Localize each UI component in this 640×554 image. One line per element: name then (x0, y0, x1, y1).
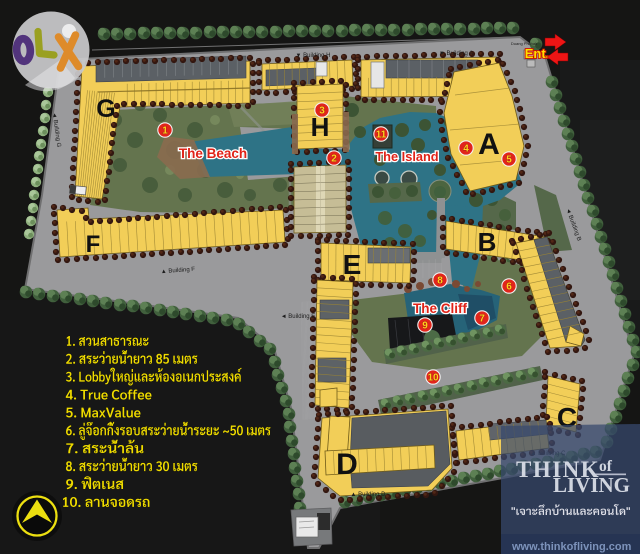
svg-text:10: 10 (427, 373, 439, 384)
svg-text:F: F (86, 231, 101, 258)
svg-text:LIVING: LIVING (553, 473, 630, 497)
svg-text:The Island: The Island (375, 149, 438, 164)
svg-text:G: G (96, 95, 115, 123)
svg-text:11: 11 (376, 130, 387, 141)
svg-text:▲ Building D: ▲ Building D (351, 492, 387, 498)
svg-text:4: 4 (463, 144, 469, 155)
svg-text:5: 5 (506, 155, 512, 166)
svg-text:9: 9 (422, 321, 428, 332)
svg-text:7: 7 (479, 314, 485, 325)
svg-text:◄ Building E: ◄ Building E (281, 314, 316, 320)
svg-text:A: A (478, 128, 500, 161)
svg-text:2: 2 (331, 154, 337, 165)
svg-text:The Cliff: The Cliff (413, 301, 467, 316)
svg-text:6: 6 (506, 282, 512, 293)
svg-text:1: 1 (162, 126, 168, 137)
svg-text:▼ Building H: ▼ Building H (296, 53, 331, 59)
svg-text:▼ Building A: ▼ Building A (439, 51, 473, 57)
svg-text:8: 8 (437, 276, 443, 287)
svg-text:E: E (343, 249, 362, 280)
svg-text:3: 3 (319, 106, 325, 117)
svg-text:The Beach: The Beach (179, 146, 247, 161)
svg-text:D: D (336, 448, 358, 481)
svg-text:Ent.: Ent. (525, 46, 550, 61)
svg-text:www.thinkofliving.com: www.thinkofliving.com (511, 541, 632, 553)
svg-text:B: B (478, 227, 497, 257)
